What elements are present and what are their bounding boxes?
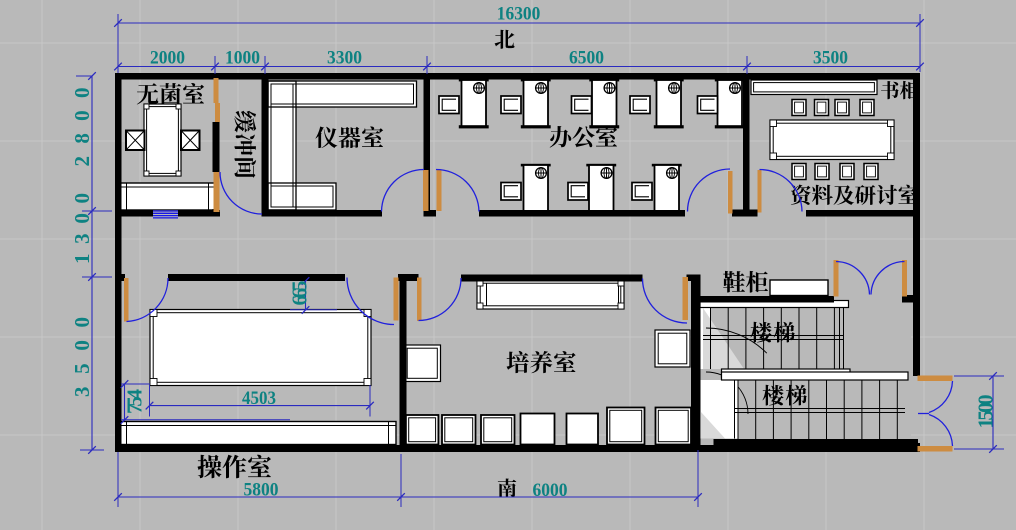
svg-text:1000: 1000 — [225, 48, 260, 69]
svg-text:3500: 3500 — [813, 48, 848, 69]
svg-text:6500: 6500 — [569, 48, 604, 69]
svg-text:5800: 5800 — [244, 480, 279, 501]
svg-text:4503: 4503 — [242, 388, 276, 409]
svg-text:754: 754 — [123, 389, 147, 415]
svg-text:6000: 6000 — [533, 480, 568, 501]
svg-text:16300: 16300 — [497, 4, 541, 25]
svg-text:2000: 2000 — [150, 48, 185, 69]
svg-text:665: 665 — [288, 281, 312, 306]
svg-text:3300: 3300 — [327, 48, 362, 69]
svg-text:1500: 1500 — [974, 395, 998, 429]
